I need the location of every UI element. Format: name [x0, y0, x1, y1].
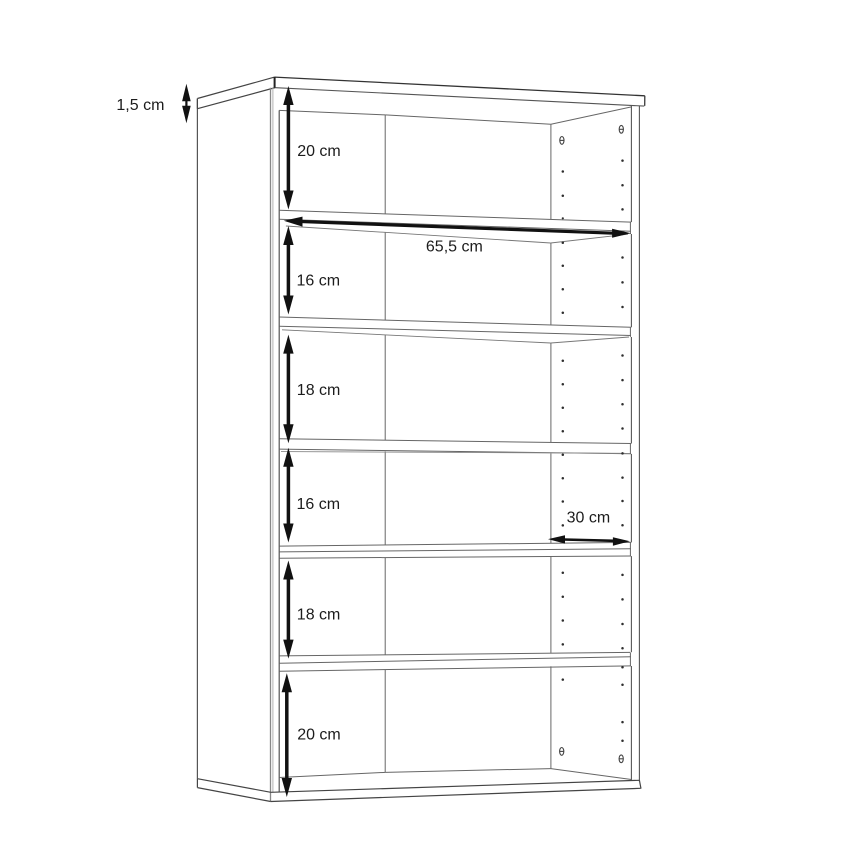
svg-text:20 cm: 20 cm [297, 143, 341, 160]
svg-text:30 cm: 30 cm [567, 509, 611, 526]
svg-text:16 cm: 16 cm [297, 273, 341, 290]
svg-text:16 cm: 16 cm [297, 496, 341, 513]
svg-text:20 cm: 20 cm [297, 726, 341, 743]
svg-text:65,5 cm: 65,5 cm [426, 238, 483, 255]
svg-text:1,5 cm: 1,5 cm [116, 97, 164, 114]
svg-text:18 cm: 18 cm [297, 382, 341, 399]
svg-text:18 cm: 18 cm [297, 607, 341, 624]
